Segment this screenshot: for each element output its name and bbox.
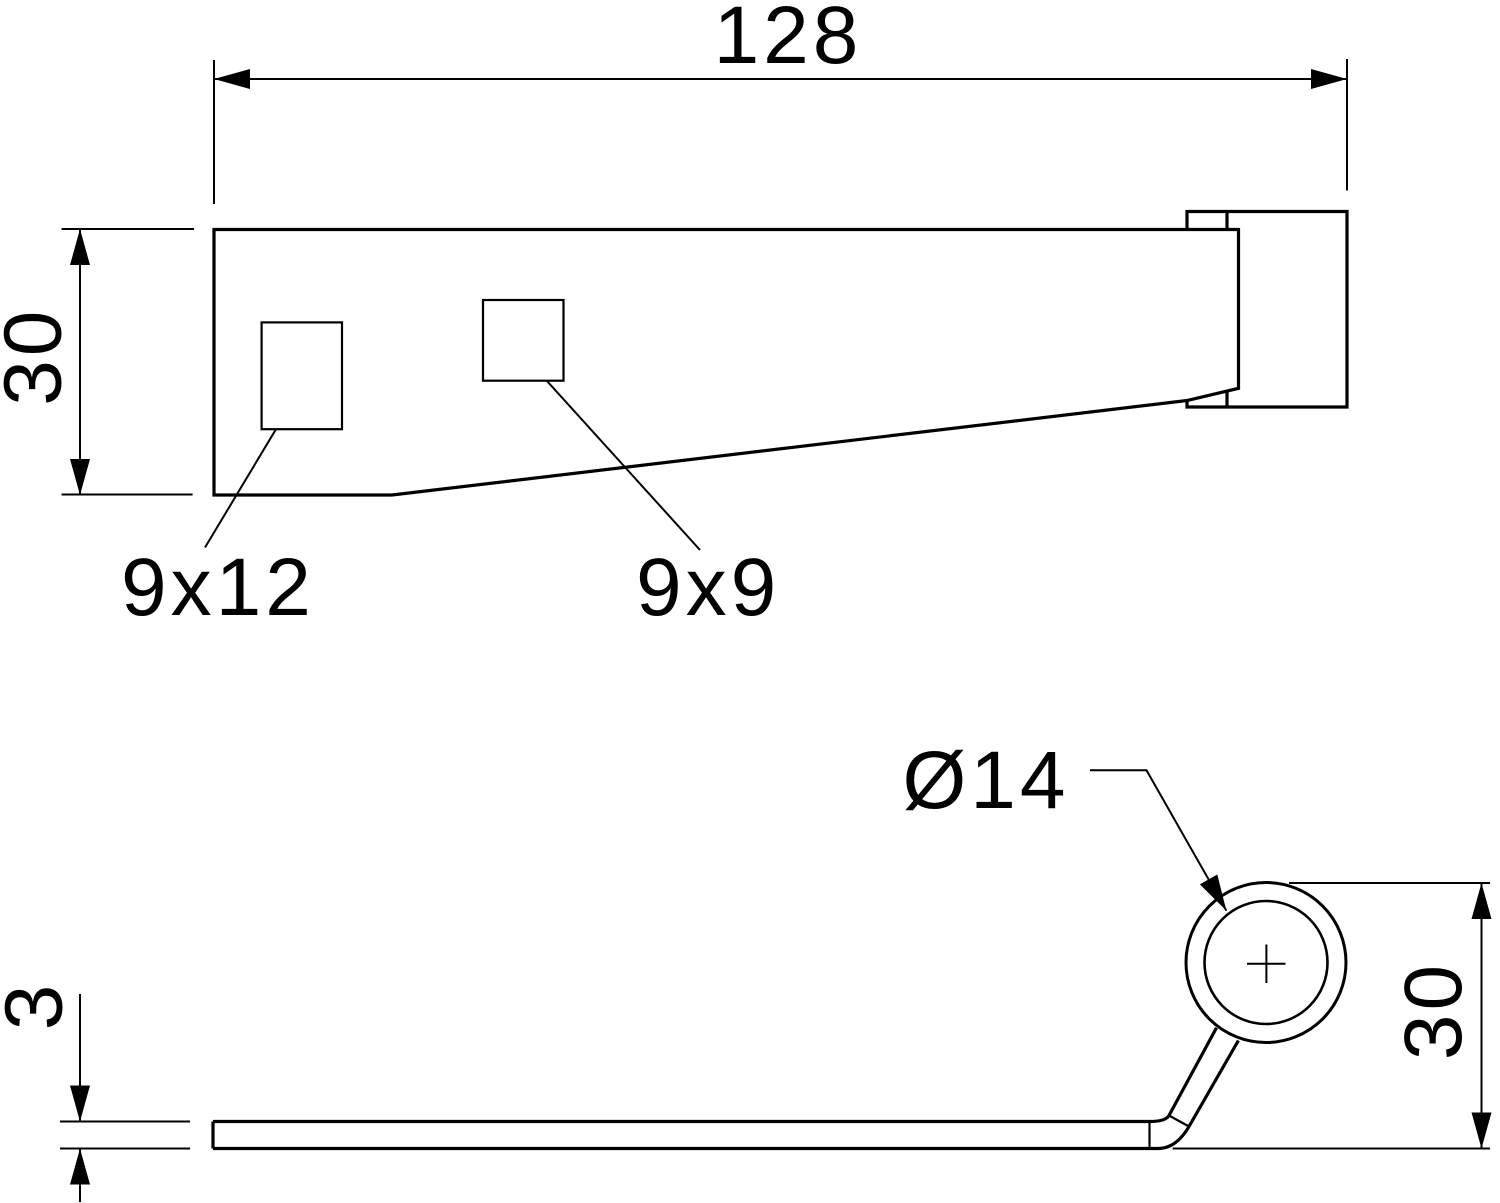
svg-text:9x12: 9x12 bbox=[121, 542, 315, 633]
svg-text:30: 30 bbox=[1388, 961, 1479, 1060]
svg-text:128: 128 bbox=[714, 0, 863, 81]
svg-text:30: 30 bbox=[0, 307, 79, 406]
svg-text:Ø14: Ø14 bbox=[903, 735, 1070, 826]
svg-text:3: 3 bbox=[0, 985, 80, 1031]
svg-text:9x9: 9x9 bbox=[636, 542, 780, 633]
